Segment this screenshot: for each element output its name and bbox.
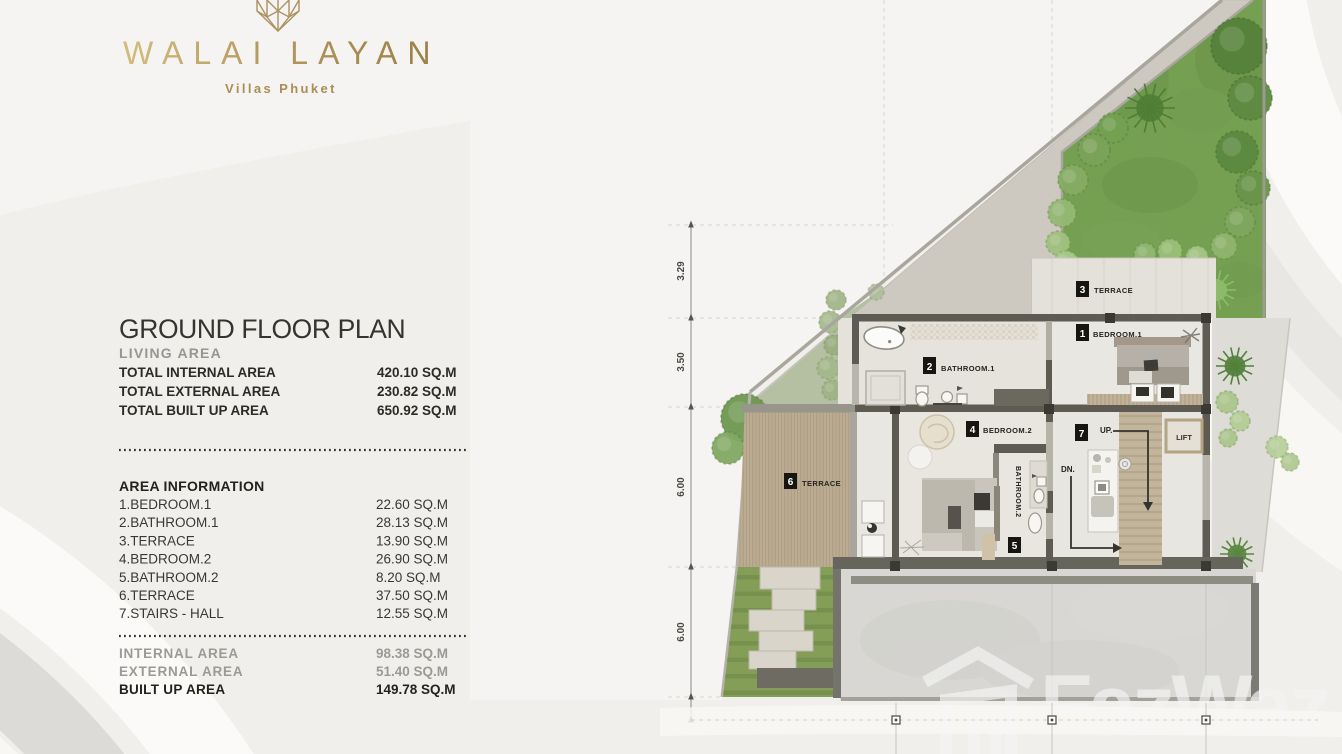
svg-text:Villas Phuket: Villas Phuket [225,81,337,96]
svg-text:51.40 SQ.M: 51.40 SQ.M [376,664,448,679]
svg-text:5.BATHROOM.2: 5.BATHROOM.2 [119,570,219,585]
svg-text:4.BEDROOM.2: 4.BEDROOM.2 [119,552,211,567]
svg-text:12.55 SQ.M: 12.55 SQ.M [376,606,448,621]
svg-text:TOTAL INTERNAL AREA: TOTAL INTERNAL AREA [119,365,276,380]
svg-text:4: 4 [970,425,976,436]
svg-text:3.TERRACE: 3.TERRACE [119,533,195,548]
svg-text:2.BATHROOM.1: 2.BATHROOM.1 [119,515,219,530]
svg-text:3: 3 [1080,285,1086,296]
svg-text:LIVING AREA: LIVING AREA [119,345,222,361]
svg-text:7.STAIRS - HALL: 7.STAIRS - HALL [119,606,224,621]
svg-text:8.20 SQ.M: 8.20 SQ.M [376,570,441,585]
svg-text:22.60 SQ.M: 22.60 SQ.M [376,497,448,512]
svg-text:1.BEDROOM.1: 1.BEDROOM.1 [119,497,211,512]
svg-text:FazWaz: FazWaz [1040,658,1329,754]
svg-text:1: 1 [1080,329,1086,340]
svg-text:TOTAL EXTERNAL AREA: TOTAL EXTERNAL AREA [119,384,281,399]
svg-text:INTERNAL AREA: INTERNAL AREA [119,646,239,661]
svg-text:LIFT: LIFT [1176,433,1192,442]
svg-text:98.38 SQ.M: 98.38 SQ.M [376,646,448,661]
svg-text:2: 2 [927,362,933,373]
svg-text:TOTAL BUILT UP AREA: TOTAL BUILT UP AREA [119,403,269,418]
svg-text:EXTERNAL AREA: EXTERNAL AREA [119,664,243,679]
svg-text:420.10 SQ.M: 420.10 SQ.M [377,365,457,380]
svg-text:3.29: 3.29 [676,261,687,281]
svg-text:6.00: 6.00 [676,622,687,642]
svg-text:GROUND FLOOR PLAN: GROUND FLOOR PLAN [119,314,405,344]
svg-text:5: 5 [1012,541,1018,552]
svg-text:DN.: DN. [1061,465,1075,474]
svg-text:TERRACE: TERRACE [1094,286,1133,295]
svg-text:230.82 SQ.M: 230.82 SQ.M [377,384,457,399]
svg-text:UP.: UP. [1100,426,1112,435]
svg-text:BEDROOM.1: BEDROOM.1 [1093,330,1142,339]
svg-text:TERRACE: TERRACE [802,479,841,488]
svg-text:WALAI LAYAN: WALAI LAYAN [123,35,440,71]
svg-text:BUILT UP AREA: BUILT UP AREA [119,682,225,697]
svg-text:6.TERRACE: 6.TERRACE [119,588,195,603]
svg-text:28.13 SQ.M: 28.13 SQ.M [376,515,448,530]
svg-text:7: 7 [1079,429,1085,440]
svg-text:3.50: 3.50 [676,352,687,372]
svg-text:BATHROOM.2: BATHROOM.2 [1014,466,1021,518]
svg-text:26.90 SQ.M: 26.90 SQ.M [376,552,448,567]
svg-text:37.50 SQ.M: 37.50 SQ.M [376,588,448,603]
svg-text:BATHROOM.1: BATHROOM.1 [941,364,995,373]
svg-text:6: 6 [788,477,794,488]
svg-text:650.92 SQ.M: 650.92 SQ.M [377,403,457,418]
svg-text:BEDROOM.2: BEDROOM.2 [983,426,1032,435]
svg-text:AREA INFORMATION: AREA INFORMATION [119,478,265,494]
svg-text:6.00: 6.00 [676,477,687,497]
svg-text:13.90 SQ.M: 13.90 SQ.M [376,533,448,548]
svg-text:149.78 SQ.M: 149.78 SQ.M [376,682,456,697]
